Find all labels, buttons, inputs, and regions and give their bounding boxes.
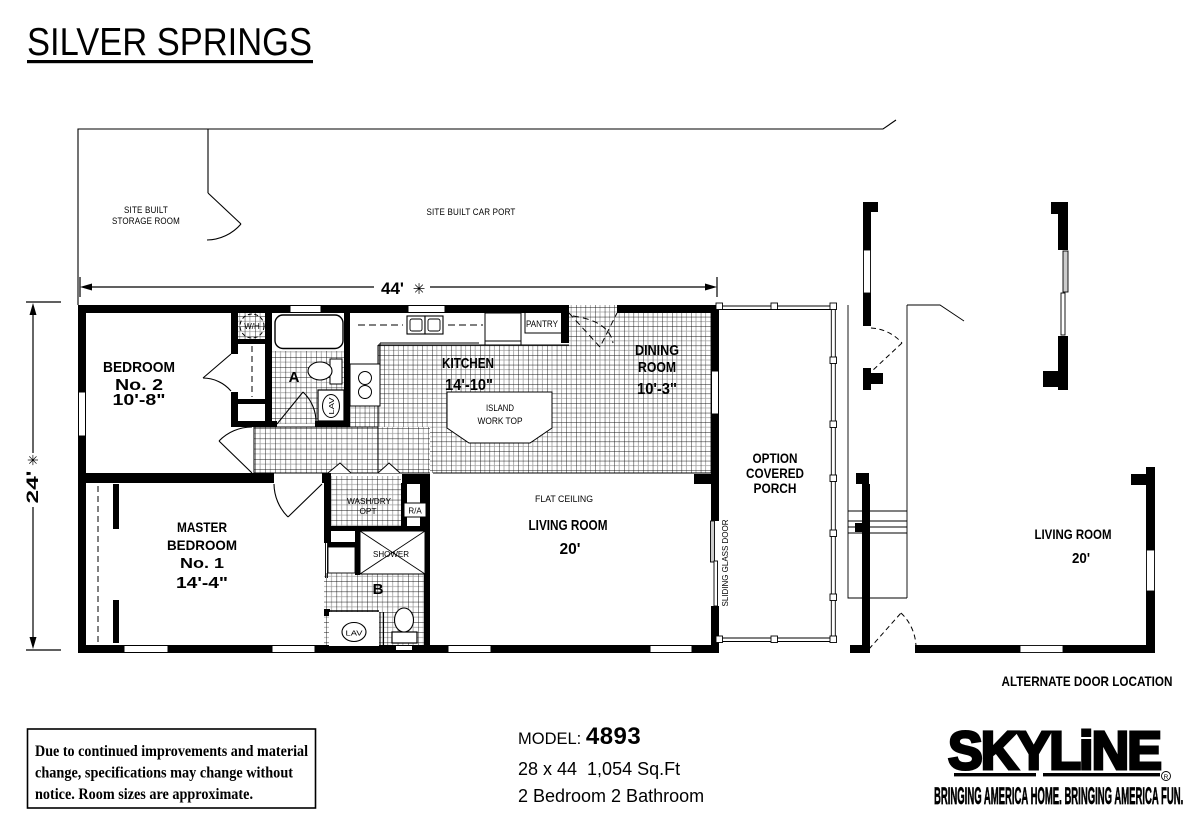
svg-text:STORAGE ROOM: STORAGE ROOM [112, 216, 180, 226]
svg-text:20': 20' [560, 541, 581, 558]
svg-text:OPT: OPT [360, 507, 377, 516]
svg-text:R: R [1164, 774, 1169, 781]
svg-text:44': 44' [381, 279, 404, 298]
svg-text:BRINGING AMERICA HOME. BRINGIN: BRINGING AMERICA HOME. BRINGING AMERICA … [934, 784, 1183, 810]
svg-text:MODEL: 4893: MODEL: 4893 [518, 723, 641, 750]
svg-text:SITE BUILT CAR PORT: SITE BUILT CAR PORT [427, 207, 516, 217]
svg-text:10'-8": 10'-8" [113, 392, 166, 409]
svg-text:PORCH: PORCH [754, 481, 797, 496]
svg-text:DINING: DINING [635, 342, 679, 359]
svg-text:R/A: R/A [408, 507, 422, 516]
svg-text:14'-4": 14'-4" [176, 575, 228, 592]
svg-text:LIVING ROOM: LIVING ROOM [1035, 526, 1112, 542]
svg-text:MASTER: MASTER [177, 519, 227, 535]
svg-text:change, specifications may cha: change, specifications may change withou… [35, 765, 294, 782]
svg-text:14'-10": 14'-10" [445, 377, 493, 394]
svg-text:W/H: W/H [244, 322, 260, 331]
svg-text:B: B [373, 581, 384, 598]
svg-text:LAV: LAV [346, 629, 363, 638]
svg-text:COVERED: COVERED [746, 466, 804, 481]
svg-text:LAV: LAV [327, 398, 336, 415]
svg-text:20': 20' [1072, 550, 1090, 567]
svg-text:ISLAND: ISLAND [486, 403, 514, 413]
svg-text:PANTRY: PANTRY [526, 319, 558, 329]
svg-text:No. 1: No. 1 [180, 555, 224, 572]
svg-text:WORK TOP: WORK TOP [478, 416, 523, 426]
svg-text:WASH/DRY: WASH/DRY [347, 497, 392, 506]
svg-text:LIVING ROOM: LIVING ROOM [529, 517, 608, 534]
svg-text:24': 24' [23, 471, 42, 504]
svg-text:SITE BUILT: SITE BUILT [124, 205, 168, 215]
svg-text:Due to continued improvements: Due to continued improvements and materi… [35, 743, 308, 760]
svg-text:2 Bedroom 2 Bathroom: 2 Bedroom 2 Bathroom [518, 786, 704, 806]
svg-text:ALTERNATE DOOR LOCATION: ALTERNATE DOOR LOCATION [1002, 673, 1173, 689]
svg-text:notice. Room sizes are approxi: notice. Room sizes are approximate. [35, 786, 253, 803]
svg-text:A: A [289, 369, 300, 386]
svg-text:BEDROOM: BEDROOM [167, 537, 237, 553]
svg-text:28 x 44 1,054 Sq.Ft: 28 x 44 1,054 Sq.Ft [518, 759, 680, 779]
svg-text:SKYLiNE: SKYLiNE [948, 721, 1160, 781]
svg-text:✳: ✳ [413, 281, 426, 298]
svg-text:10'-3": 10'-3" [637, 381, 677, 398]
svg-text:OPTION: OPTION [753, 451, 798, 466]
svg-text:BEDROOM: BEDROOM [103, 359, 175, 376]
svg-text:ROOM: ROOM [638, 359, 676, 376]
svg-text:SILVER SPRINGS: SILVER SPRINGS [27, 21, 312, 64]
svg-text:FLAT CEILING: FLAT CEILING [535, 494, 593, 505]
svg-text:SHOWER: SHOWER [373, 549, 409, 559]
svg-text:KITCHEN: KITCHEN [442, 355, 494, 372]
svg-text:✳: ✳ [25, 454, 41, 466]
svg-text:SLIDING GLASS DOOR: SLIDING GLASS DOOR [720, 520, 730, 607]
